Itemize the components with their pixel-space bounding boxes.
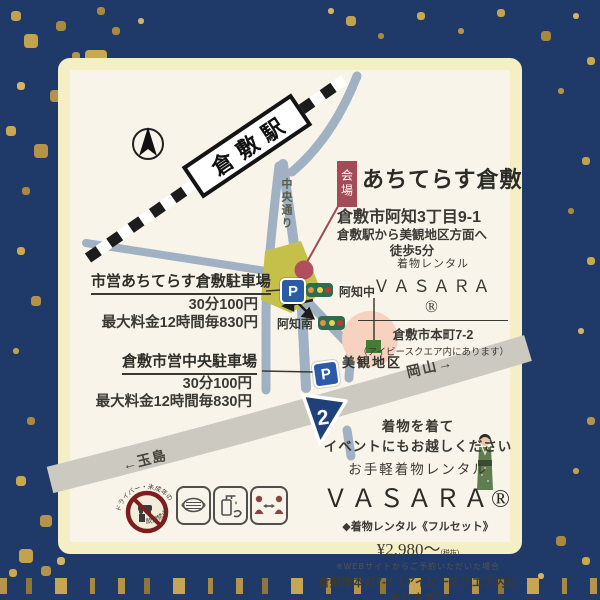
vasara-map-heading: 着物レンタル xyxy=(358,255,508,271)
promo-line3: お手軽着物レンタル xyxy=(314,458,522,478)
parking2-leader xyxy=(262,371,314,372)
vasara-promo-block: 着物を着て イベントにもお越しください お手軽着物レンタル ＶＡＳＡＲＡ® ◆着… xyxy=(314,415,522,600)
parking1-prices: 30分100円 最大料金12時間毎830円 xyxy=(90,296,258,332)
mask-icon xyxy=(177,487,210,524)
north-compass-icon xyxy=(133,127,163,159)
promo-priceline: ◆着物レンタル《フルセット》¥2,980〜(税抜) xyxy=(314,517,522,560)
parking2-name: 倉敷市営中央駐車場 xyxy=(122,350,257,375)
promo-price-note: (税抜) xyxy=(441,550,460,557)
promo-brand: ＶＡＳＡＲＡ® xyxy=(314,479,522,515)
traffic-light-achi-naka xyxy=(306,283,333,297)
parking1-sign: P xyxy=(280,278,306,304)
parking2-prices: 30分100円 最大料金12時間毎830円 xyxy=(90,375,252,411)
promo-address: 倉敷市本町7-2（アイビースクエア内にあります） xyxy=(314,574,522,600)
kaijo-leader-line xyxy=(307,201,341,262)
signal-south-label: 阿知南 xyxy=(277,315,313,332)
parking1-price2: 最大料金12時間毎830円 xyxy=(90,314,258,332)
parking2-sign: P xyxy=(311,359,340,388)
vasara-map-address: 倉敷市本町7-2 xyxy=(358,324,508,343)
promo-price-prefix: ◆着物レンタル《フルセット》 xyxy=(342,521,493,533)
vasara-map-block: 着物レンタル ＶＡＳＡＲＡ® 倉敷市本町7-2 （アイビースクエア内にあります） xyxy=(358,255,508,358)
no-drink-drive-icon: ドライバー・未成年の 飲酒禁止 xyxy=(115,482,174,531)
chuo-dori-label: 中央通り xyxy=(278,178,294,230)
venue-marker xyxy=(295,261,314,280)
parking1-price1: 30分100円 xyxy=(90,296,258,314)
promo-price: ¥2,980〜 xyxy=(377,540,441,559)
promo-web-note: ※WEBサイトからご予約いただいた場合 xyxy=(314,561,522,572)
parking2-price2: 最大料金12時間毎830円 xyxy=(90,393,252,411)
vasara-map-brand: ＶＡＳＡＲＡ® xyxy=(358,271,508,321)
venue-name: あちてらす倉敷 xyxy=(362,162,523,194)
social-distance-icon xyxy=(251,487,287,524)
parking2-sign-letter: P xyxy=(320,365,332,383)
kaijo-tag: 会場 xyxy=(337,161,357,207)
promo-line1: 着物を着て xyxy=(314,415,522,435)
traffic-light-achi-minami xyxy=(318,316,345,330)
flyer-stage: 2 ドライバー・未成年の 飲酒禁止 xyxy=(0,0,600,600)
parking1-name: 市営あちてらす倉敷駐車場 xyxy=(91,270,271,295)
promo-line2: イベントにもお越しください xyxy=(314,435,522,455)
sanitizer-icon xyxy=(214,487,247,524)
parking1-sign-letter: P xyxy=(288,283,298,300)
parking2-price1: 30分100円 xyxy=(90,375,252,393)
vasara-map-note: （アイビースクエア内にあります） xyxy=(358,344,508,358)
